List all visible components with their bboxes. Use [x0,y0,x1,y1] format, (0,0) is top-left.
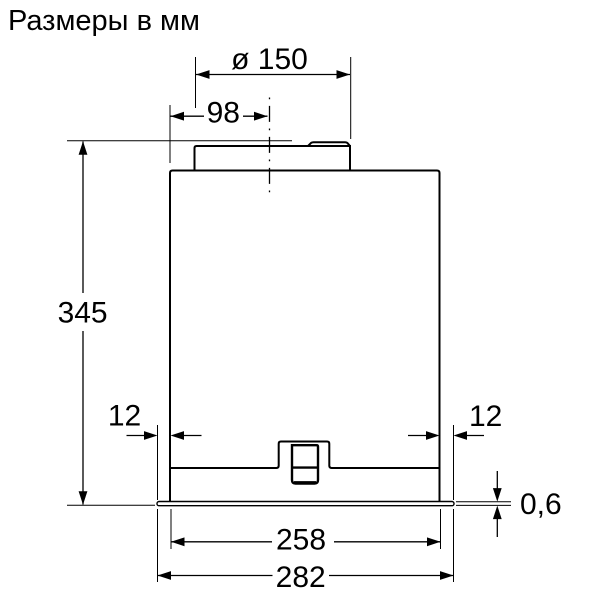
svg-text:258: 258 [276,524,326,557]
svg-text:0,6: 0,6 [520,488,562,521]
svg-text:12: 12 [469,400,502,433]
svg-text:345: 345 [58,296,108,329]
svg-text:Размеры в мм: Размеры в мм [8,5,200,37]
svg-text:12: 12 [108,400,141,433]
svg-text:98: 98 [207,97,240,130]
svg-text:282: 282 [276,561,326,594]
svg-text:ø 150: ø 150 [231,43,308,76]
